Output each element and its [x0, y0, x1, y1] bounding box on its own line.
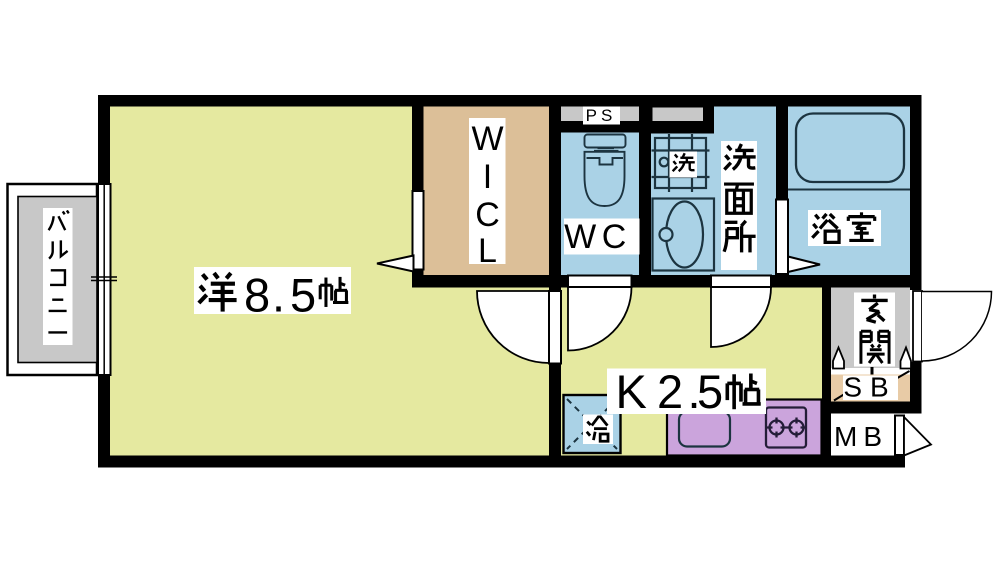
svg-text:I: I [483, 158, 492, 196]
svg-text:C: C [475, 196, 500, 234]
svg-text:MB: MB [834, 421, 888, 452]
svg-text:5: 5 [697, 365, 723, 418]
svg-text:2: 2 [657, 365, 683, 418]
svg-text:.: . [272, 269, 285, 322]
svg-text:W: W [471, 120, 503, 158]
svg-text:5: 5 [290, 269, 316, 322]
svg-text:WC: WC [564, 218, 632, 256]
svg-text:K: K [616, 365, 647, 418]
svg-text:SB: SB [843, 372, 896, 403]
svg-text:8: 8 [244, 269, 270, 322]
svg-text:L: L [478, 232, 497, 270]
svg-text:PS: PS [586, 106, 617, 125]
